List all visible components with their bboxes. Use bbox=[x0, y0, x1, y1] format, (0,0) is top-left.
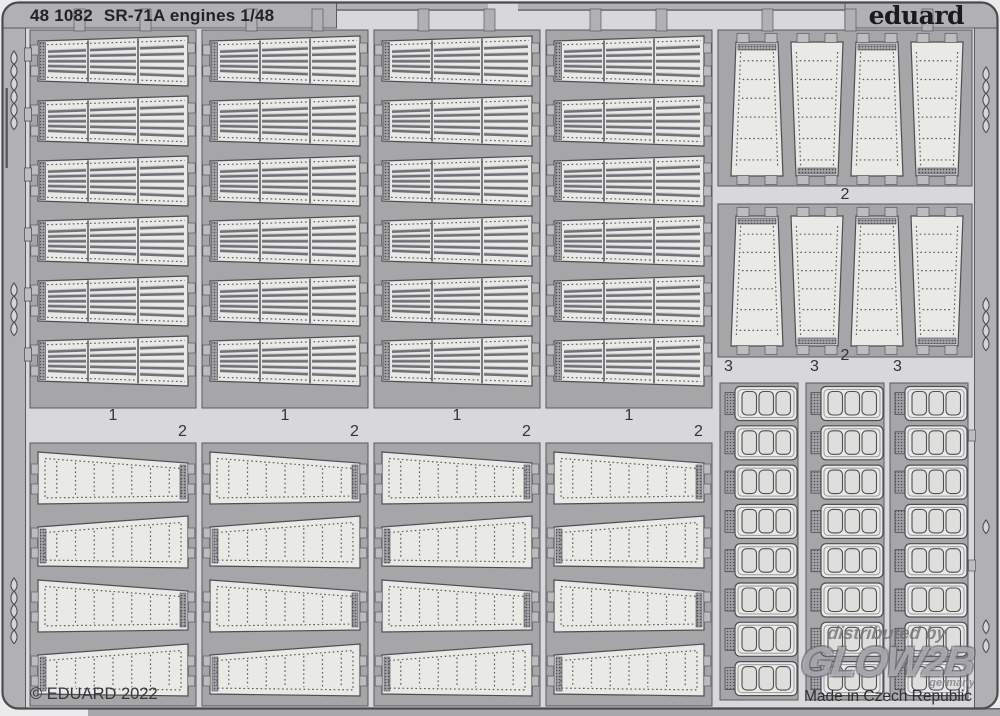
wide-strip-column bbox=[374, 443, 540, 706]
grid-part bbox=[895, 387, 967, 421]
louver-panel bbox=[547, 156, 711, 206]
photoetch-sheet-photo: 48 1082SR-71A engines 1/48 eduard © EDUA… bbox=[0, 0, 1000, 716]
grid-part-cluster bbox=[720, 383, 976, 700]
grid-part bbox=[725, 426, 797, 460]
grid-part bbox=[811, 426, 883, 460]
vertical-strip-panel bbox=[851, 34, 903, 185]
grid-part bbox=[811, 583, 883, 617]
grid-part bbox=[895, 583, 967, 617]
grid-part bbox=[895, 504, 967, 538]
grid-part bbox=[895, 622, 967, 656]
vertical-strip-panel bbox=[791, 208, 843, 355]
part-number-label-2: 2 bbox=[841, 187, 850, 203]
louver-panel bbox=[31, 216, 195, 266]
grid-part bbox=[725, 622, 797, 656]
part-number-label-3: 3 bbox=[810, 359, 819, 375]
louver-panel bbox=[31, 336, 195, 386]
louver-panel bbox=[31, 36, 195, 86]
grid-part-column bbox=[806, 383, 884, 700]
louver-panel bbox=[31, 156, 195, 206]
part-number-label-1: 1 bbox=[109, 408, 118, 424]
louver-panel bbox=[203, 216, 367, 266]
grid-part bbox=[811, 622, 883, 656]
grid-part bbox=[811, 387, 883, 421]
grid-part bbox=[725, 662, 797, 696]
grid-part bbox=[725, 544, 797, 578]
louver-panel bbox=[547, 276, 711, 326]
part-number-label-3: 3 bbox=[893, 359, 902, 375]
louver-panel bbox=[375, 96, 539, 146]
grid-part bbox=[725, 504, 797, 538]
grid-part-column bbox=[890, 383, 968, 700]
part-number-label-2: 2 bbox=[522, 424, 531, 440]
louver-panel bbox=[375, 276, 539, 326]
wide-strip-column bbox=[202, 443, 368, 706]
part-number-label-2: 2 bbox=[350, 424, 359, 440]
part-number-label-2: 2 bbox=[694, 424, 703, 440]
louver-panel bbox=[203, 96, 367, 146]
wide-strip-column bbox=[30, 443, 196, 706]
louver-panel bbox=[375, 156, 539, 206]
grid-part bbox=[811, 504, 883, 538]
part-number-label-1: 1 bbox=[625, 408, 634, 424]
louver-panel-column bbox=[25, 9, 197, 408]
brand-logo: eduard bbox=[869, 1, 964, 30]
copyright-text: © EDUARD 2022 bbox=[30, 685, 158, 704]
vertical-strip-group bbox=[718, 204, 972, 357]
louver-panel bbox=[547, 36, 711, 86]
louver-panel bbox=[203, 336, 367, 386]
part-number-label-2: 2 bbox=[841, 348, 850, 364]
grid-part bbox=[811, 465, 883, 499]
louver-panel bbox=[547, 216, 711, 266]
vertical-strip-group bbox=[718, 30, 972, 186]
fret-artwork bbox=[0, 0, 1000, 716]
grid-part bbox=[895, 426, 967, 460]
grid-part-column bbox=[720, 383, 798, 700]
vertical-strip-panel bbox=[911, 208, 963, 355]
vertical-strip-panel bbox=[851, 208, 903, 355]
part-number-label-3: 3 bbox=[724, 359, 733, 375]
louver-panel bbox=[203, 156, 367, 206]
louver-panel bbox=[203, 36, 367, 86]
louver-panel bbox=[375, 216, 539, 266]
part-number-label-1: 1 bbox=[281, 408, 290, 424]
grid-part bbox=[725, 465, 797, 499]
louver-panel bbox=[375, 36, 539, 86]
louver-panel bbox=[31, 276, 195, 326]
part-number-label-1: 1 bbox=[453, 408, 462, 424]
made-in-text: Made in Czech Republic bbox=[804, 688, 972, 706]
wide-strip-column bbox=[546, 443, 712, 706]
vertical-strip-panel bbox=[731, 34, 783, 185]
louver-panel bbox=[547, 336, 711, 386]
vertical-strip-groups bbox=[718, 9, 972, 357]
grid-part bbox=[811, 544, 883, 578]
grid-part bbox=[895, 465, 967, 499]
vertical-strip-panel bbox=[731, 208, 783, 355]
sheet-name: SR-71A engines 1/48 bbox=[104, 6, 274, 25]
vertical-strip-panel bbox=[791, 34, 843, 185]
louver-panel bbox=[31, 96, 195, 146]
part-number-label-2: 2 bbox=[178, 424, 187, 440]
louver-panel-clusters bbox=[25, 9, 713, 408]
grid-part bbox=[725, 387, 797, 421]
louver-panel bbox=[203, 276, 367, 326]
grid-part bbox=[895, 544, 967, 578]
sheet-title: 48 1082SR-71A engines 1/48 bbox=[30, 6, 274, 26]
sheet-code: 48 1082 bbox=[30, 6, 93, 25]
louver-panel bbox=[375, 336, 539, 386]
louver-panel bbox=[547, 96, 711, 146]
grid-part bbox=[725, 583, 797, 617]
vertical-strip-panel bbox=[911, 34, 963, 185]
